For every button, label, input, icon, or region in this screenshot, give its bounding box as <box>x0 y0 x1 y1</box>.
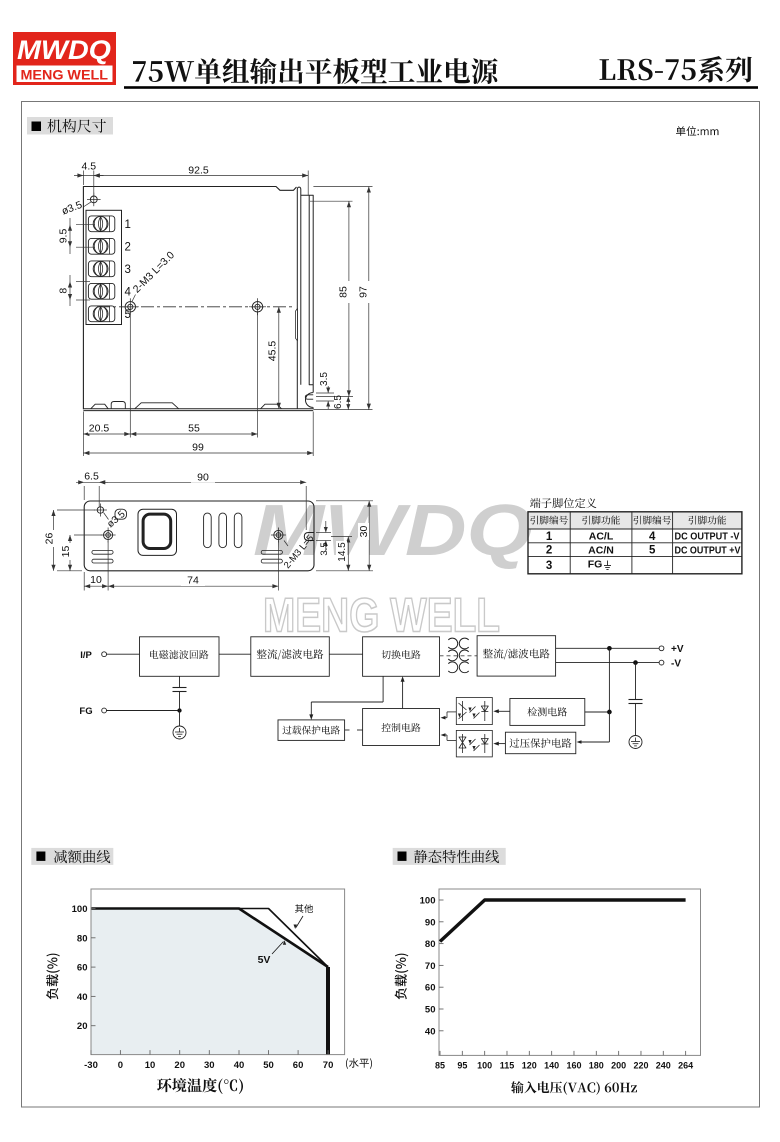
svg-text:60: 60 <box>425 983 436 994</box>
svg-text:DC OUTPUT +V: DC OUTPUT +V <box>675 545 741 557</box>
svg-text:5V: 5V <box>258 954 271 966</box>
svg-text:100: 100 <box>72 904 88 915</box>
svg-text:+V: +V <box>671 644 684 655</box>
svg-text:5: 5 <box>649 545 656 557</box>
svg-text:85: 85 <box>337 286 349 298</box>
svg-text:MENG WELL: MENG WELL <box>263 590 500 643</box>
svg-text:30: 30 <box>204 1060 215 1071</box>
svg-text:180: 180 <box>589 1061 604 1071</box>
svg-text:MWDQ: MWDQ <box>17 35 111 65</box>
svg-text:6.5: 6.5 <box>84 471 99 483</box>
svg-text:99: 99 <box>192 442 204 454</box>
svg-text:14.5: 14.5 <box>337 542 348 562</box>
svg-text:3: 3 <box>125 264 131 276</box>
svg-text:20.5: 20.5 <box>89 423 110 435</box>
svg-text:FG: FG <box>588 558 603 570</box>
svg-text:1: 1 <box>125 219 131 231</box>
svg-text:2: 2 <box>125 241 131 253</box>
svg-text:74: 74 <box>187 575 199 587</box>
svg-text:2: 2 <box>546 545 552 557</box>
svg-text:60: 60 <box>77 963 88 974</box>
svg-text:90: 90 <box>425 917 436 928</box>
svg-text:40: 40 <box>234 1060 245 1071</box>
svg-text:4.5: 4.5 <box>81 161 96 173</box>
svg-text:MENG WELL: MENG WELL <box>21 67 109 82</box>
svg-text:200: 200 <box>611 1061 626 1071</box>
svg-text:240: 240 <box>656 1061 671 1071</box>
svg-text:80: 80 <box>425 939 436 950</box>
svg-text:100: 100 <box>477 1061 492 1071</box>
svg-text:55: 55 <box>188 423 200 435</box>
svg-text:10: 10 <box>145 1060 156 1071</box>
svg-text:160: 160 <box>566 1061 581 1071</box>
svg-text:5: 5 <box>125 309 131 321</box>
svg-text:70: 70 <box>425 961 436 972</box>
svg-text:3.5: 3.5 <box>319 542 330 555</box>
svg-text:30: 30 <box>358 526 370 538</box>
svg-text:4: 4 <box>649 531 656 543</box>
svg-text:45.5: 45.5 <box>266 341 278 362</box>
svg-text:40: 40 <box>425 1026 436 1037</box>
svg-text:80: 80 <box>77 933 88 944</box>
svg-text:50: 50 <box>425 1005 436 1016</box>
svg-text:DC OUTPUT -V: DC OUTPUT -V <box>675 531 740 543</box>
svg-text:I/P: I/P <box>80 650 92 661</box>
svg-text:100: 100 <box>420 896 436 907</box>
svg-text:AC/N: AC/N <box>588 545 614 557</box>
svg-text:92.5: 92.5 <box>188 165 209 177</box>
svg-text:3: 3 <box>546 560 552 572</box>
svg-text:264: 264 <box>678 1061 693 1071</box>
svg-text:50: 50 <box>263 1060 274 1071</box>
svg-text:FG: FG <box>79 706 92 717</box>
svg-text:97: 97 <box>357 286 369 298</box>
svg-text:40: 40 <box>77 992 88 1003</box>
svg-text:10: 10 <box>90 574 102 586</box>
svg-text:AC/L: AC/L <box>589 531 614 543</box>
svg-text:26: 26 <box>43 533 55 545</box>
svg-text:6.5: 6.5 <box>333 395 344 409</box>
svg-text:20: 20 <box>77 1021 88 1032</box>
svg-text:120: 120 <box>522 1061 537 1071</box>
svg-text:220: 220 <box>633 1061 648 1071</box>
svg-text:70: 70 <box>323 1060 334 1071</box>
svg-text:-V: -V <box>671 658 681 669</box>
svg-text:95: 95 <box>457 1061 467 1071</box>
svg-text:140: 140 <box>544 1061 559 1071</box>
svg-text:20: 20 <box>174 1060 185 1071</box>
svg-text:115: 115 <box>500 1061 515 1071</box>
svg-text:85: 85 <box>435 1061 445 1071</box>
svg-text:0: 0 <box>118 1060 123 1071</box>
svg-text:15: 15 <box>60 546 72 558</box>
svg-text:1: 1 <box>546 531 553 543</box>
svg-text:3.5: 3.5 <box>319 372 330 386</box>
svg-text:9.5: 9.5 <box>57 229 69 244</box>
svg-text:-30: -30 <box>84 1060 98 1071</box>
svg-text:8: 8 <box>57 288 69 294</box>
svg-text:60: 60 <box>293 1060 304 1071</box>
svg-text:90: 90 <box>197 472 209 484</box>
